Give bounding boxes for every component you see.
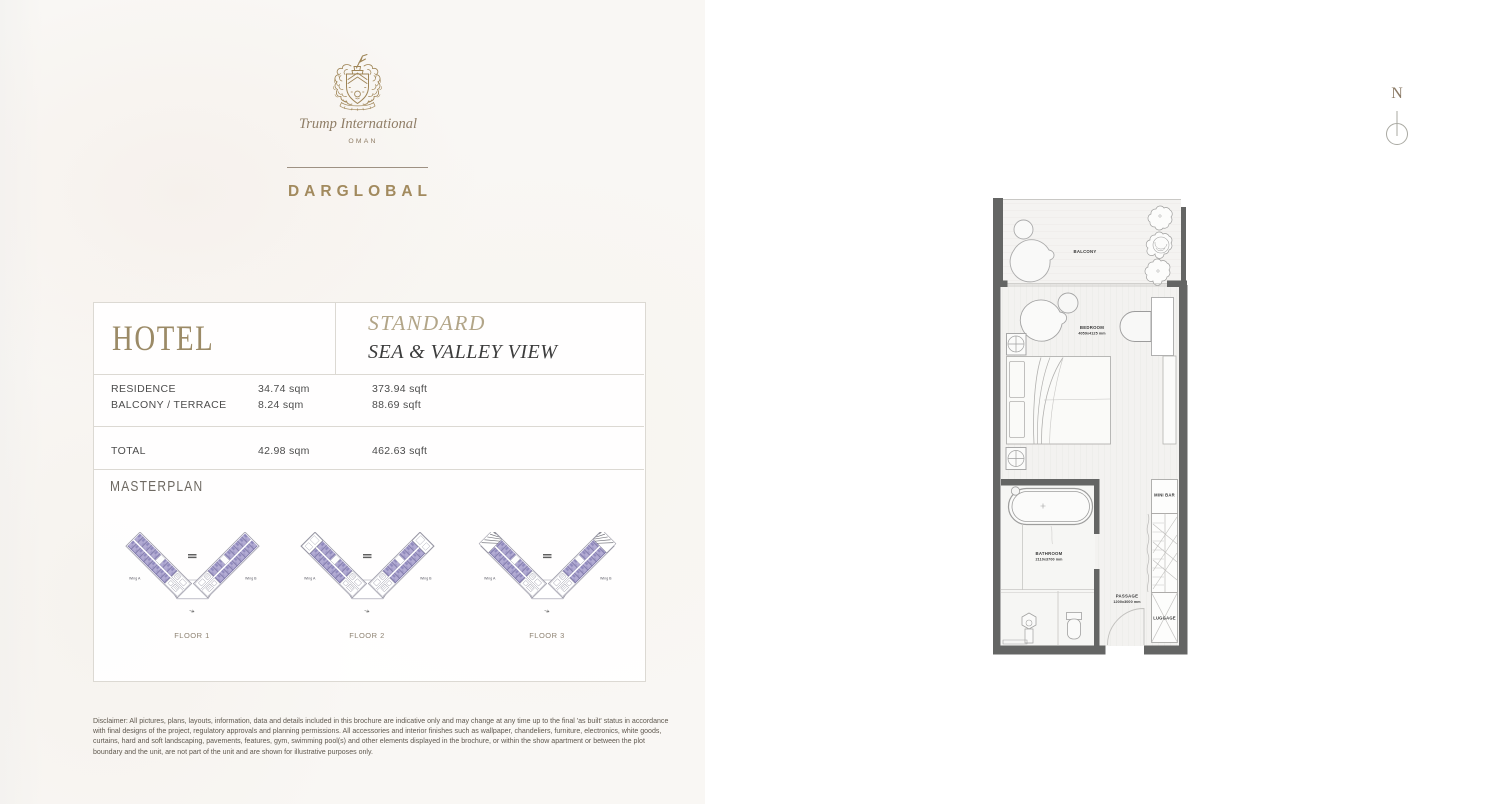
- svg-text:1200x3000 mm: 1200x3000 mm: [1113, 600, 1141, 604]
- svg-text:N: N: [1391, 85, 1403, 102]
- svg-text:BALCONY: BALCONY: [1074, 249, 1097, 254]
- svg-text:MINI BAR: MINI BAR: [1154, 493, 1175, 498]
- svg-text:PASSAGE: PASSAGE: [1116, 594, 1138, 599]
- svg-text:4059x4125 mm: 4059x4125 mm: [1078, 332, 1106, 336]
- svg-text:BATHROOM: BATHROOM: [1036, 551, 1063, 556]
- svg-text:2110x3700 mm: 2110x3700 mm: [1035, 558, 1063, 562]
- svg-text:LUGGAGE: LUGGAGE: [1153, 616, 1176, 621]
- svg-text:BEDROOM: BEDROOM: [1080, 325, 1104, 330]
